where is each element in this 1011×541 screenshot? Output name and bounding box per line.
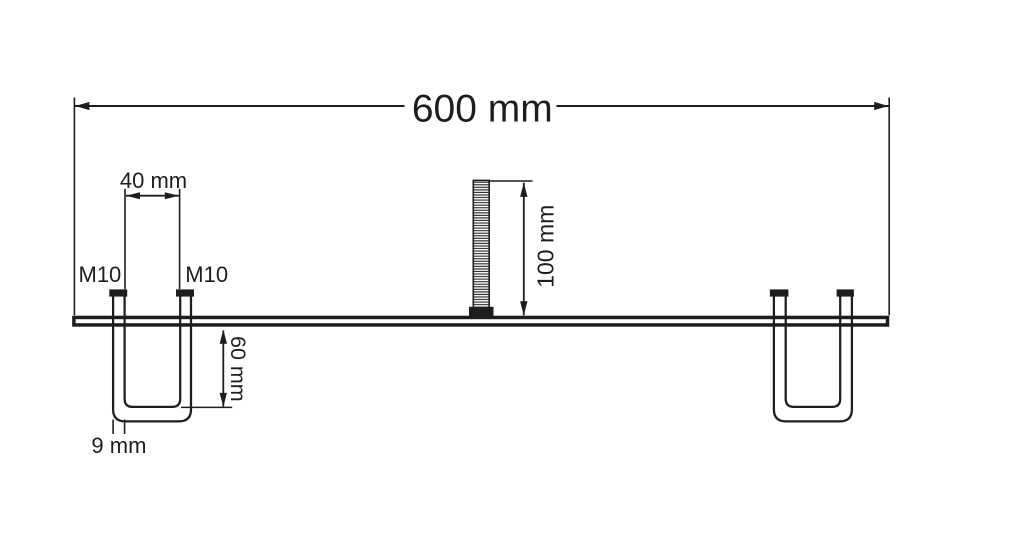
- svg-text:40 mm: 40 mm: [120, 168, 187, 193]
- svg-text:100 mm: 100 mm: [532, 205, 558, 288]
- svg-text:9 mm: 9 mm: [91, 433, 146, 458]
- svg-text:60 mm: 60 mm: [226, 336, 250, 402]
- svg-text:600 mm: 600 mm: [412, 87, 553, 130]
- svg-text:M10: M10: [79, 262, 122, 287]
- svg-text:M10: M10: [185, 262, 228, 287]
